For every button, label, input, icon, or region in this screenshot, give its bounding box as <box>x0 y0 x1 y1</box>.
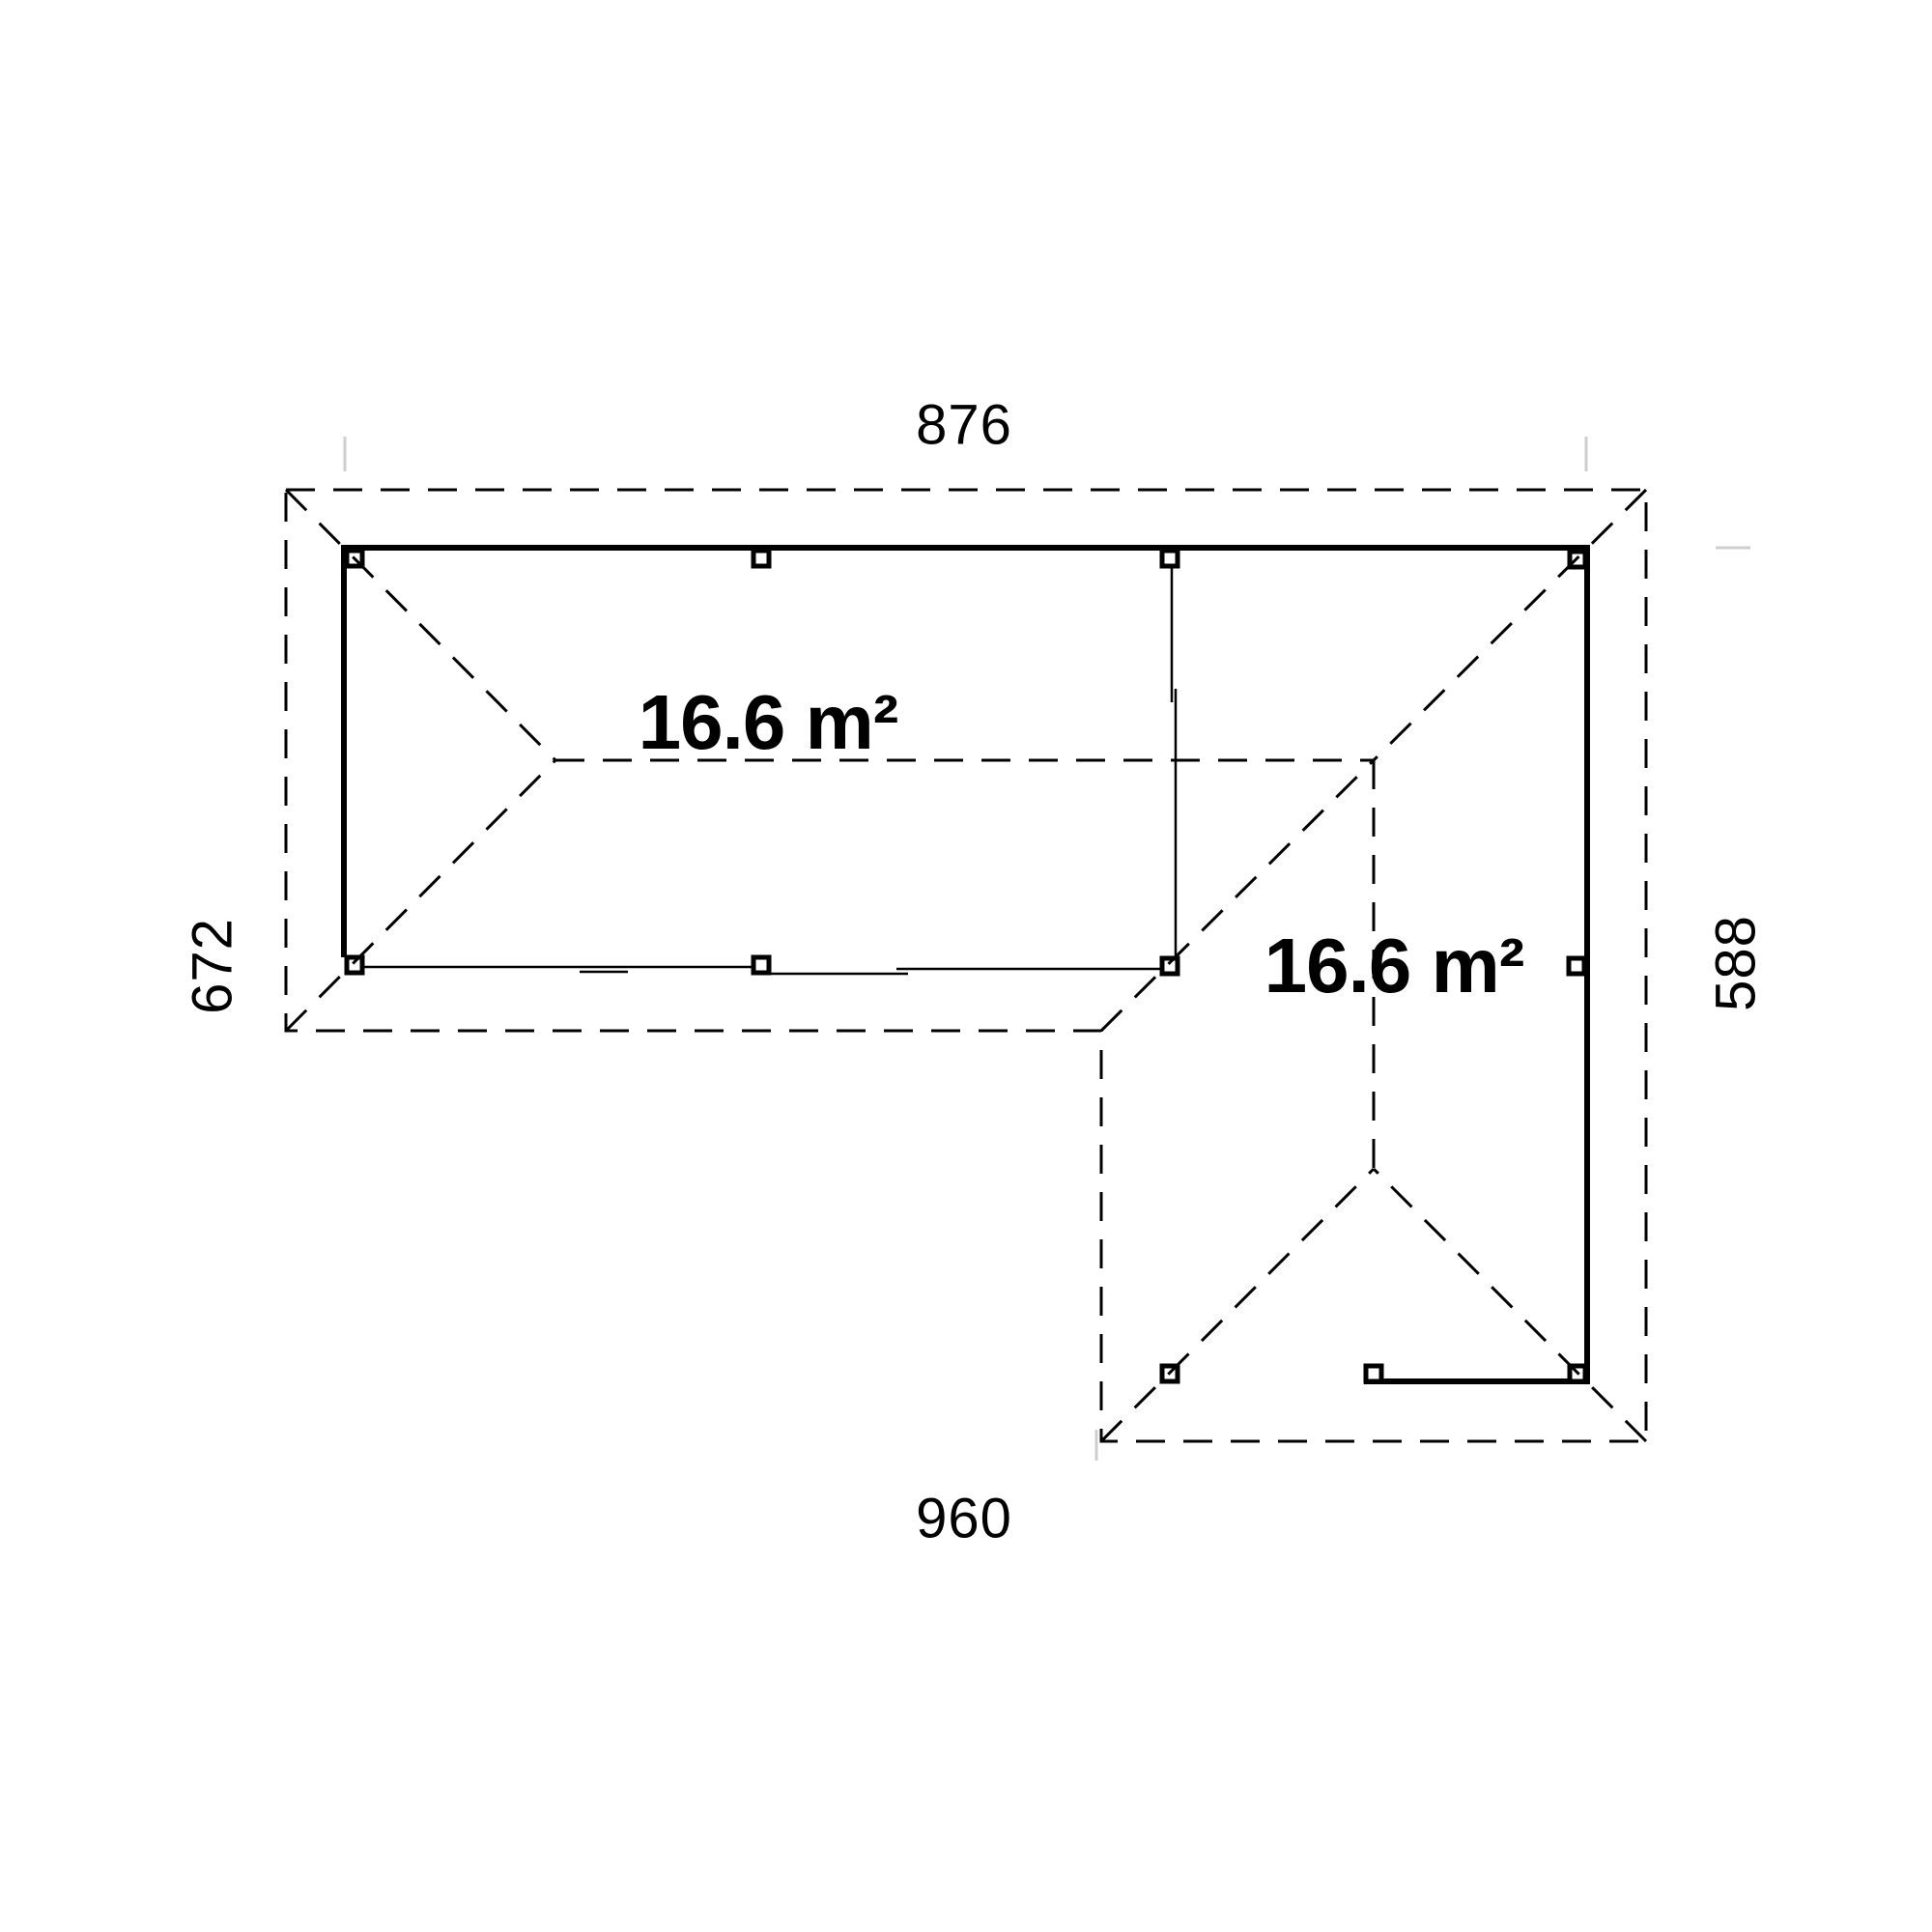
roof-hip-sw <box>1101 1169 1374 1441</box>
area-label-top-wing: 16.6 m² <box>639 678 898 767</box>
floor-plan-canvas: 876 672 588 960 16.6 m² 16.6 m² <box>0 0 1932 1932</box>
roof-hip-ne <box>1374 490 1646 760</box>
post-6 <box>753 957 769 973</box>
post-10 <box>1366 1366 1381 1381</box>
dimension-label-left: 672 <box>181 918 245 1014</box>
roof-hip-se <box>1374 1169 1646 1441</box>
floor-plan-drawing <box>0 0 1932 1932</box>
dimension-label-right: 588 <box>1704 915 1769 1011</box>
dimension-label-bottom: 960 <box>916 1487 1012 1551</box>
post-3 <box>1162 551 1178 566</box>
post-5 <box>347 957 362 973</box>
roof-hip-nw-upper <box>286 490 555 760</box>
post-2 <box>753 551 769 566</box>
post-8 <box>1569 958 1584 974</box>
roof-hip-nw-lower <box>286 760 555 1031</box>
area-label-right-wing: 16.6 m² <box>1264 922 1524 1010</box>
dimension-label-top: 876 <box>916 393 1012 458</box>
